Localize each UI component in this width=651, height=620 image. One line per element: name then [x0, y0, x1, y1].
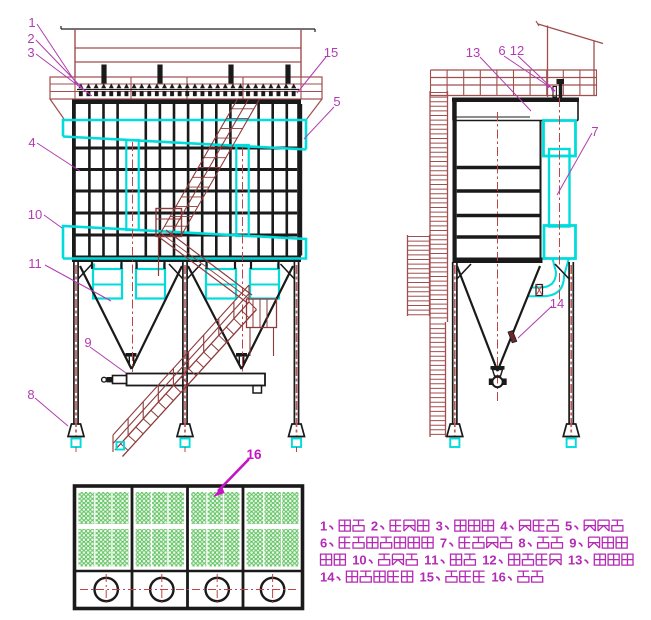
svg-text:0: 0 [359, 553, 366, 568]
svg-text:2: 2 [27, 31, 34, 46]
svg-text:5: 5 [427, 570, 434, 585]
svg-text:4: 4 [28, 135, 35, 150]
svg-text:5: 5 [333, 94, 340, 109]
svg-text:1: 1 [320, 519, 327, 534]
svg-text:4: 4 [500, 519, 508, 534]
svg-text:1: 1 [568, 553, 575, 568]
svg-text:4: 4 [327, 570, 335, 585]
svg-text:2: 2 [371, 519, 378, 534]
svg-text:16: 16 [246, 447, 262, 462]
svg-text:12: 12 [510, 43, 524, 58]
svg-text:11: 11 [28, 256, 42, 271]
svg-text:15: 15 [324, 45, 338, 60]
svg-text:1: 1 [424, 553, 431, 568]
svg-text:3: 3 [575, 553, 582, 568]
svg-text:6: 6 [499, 570, 506, 585]
svg-text:1: 1 [482, 553, 489, 568]
svg-text:3: 3 [27, 45, 34, 60]
svg-text:1: 1 [491, 570, 498, 585]
svg-text:1: 1 [320, 570, 327, 585]
svg-text:7: 7 [440, 536, 447, 551]
svg-text:3: 3 [436, 519, 443, 534]
svg-text:13: 13 [466, 45, 480, 60]
svg-text:1: 1 [28, 15, 35, 30]
svg-text:1: 1 [352, 553, 359, 568]
svg-text:9: 9 [84, 335, 91, 350]
svg-text:2: 2 [489, 553, 496, 568]
svg-text:8: 8 [518, 536, 525, 551]
svg-text:7: 7 [591, 124, 598, 139]
svg-text:1: 1 [431, 553, 438, 568]
svg-text:10: 10 [28, 207, 42, 222]
svg-text:14: 14 [550, 296, 564, 311]
svg-text:9: 9 [569, 536, 576, 551]
svg-text:8: 8 [27, 387, 34, 402]
svg-text:5: 5 [565, 519, 572, 534]
svg-text:1: 1 [420, 570, 427, 585]
svg-text:6: 6 [320, 536, 327, 551]
svg-text:6: 6 [498, 43, 505, 58]
